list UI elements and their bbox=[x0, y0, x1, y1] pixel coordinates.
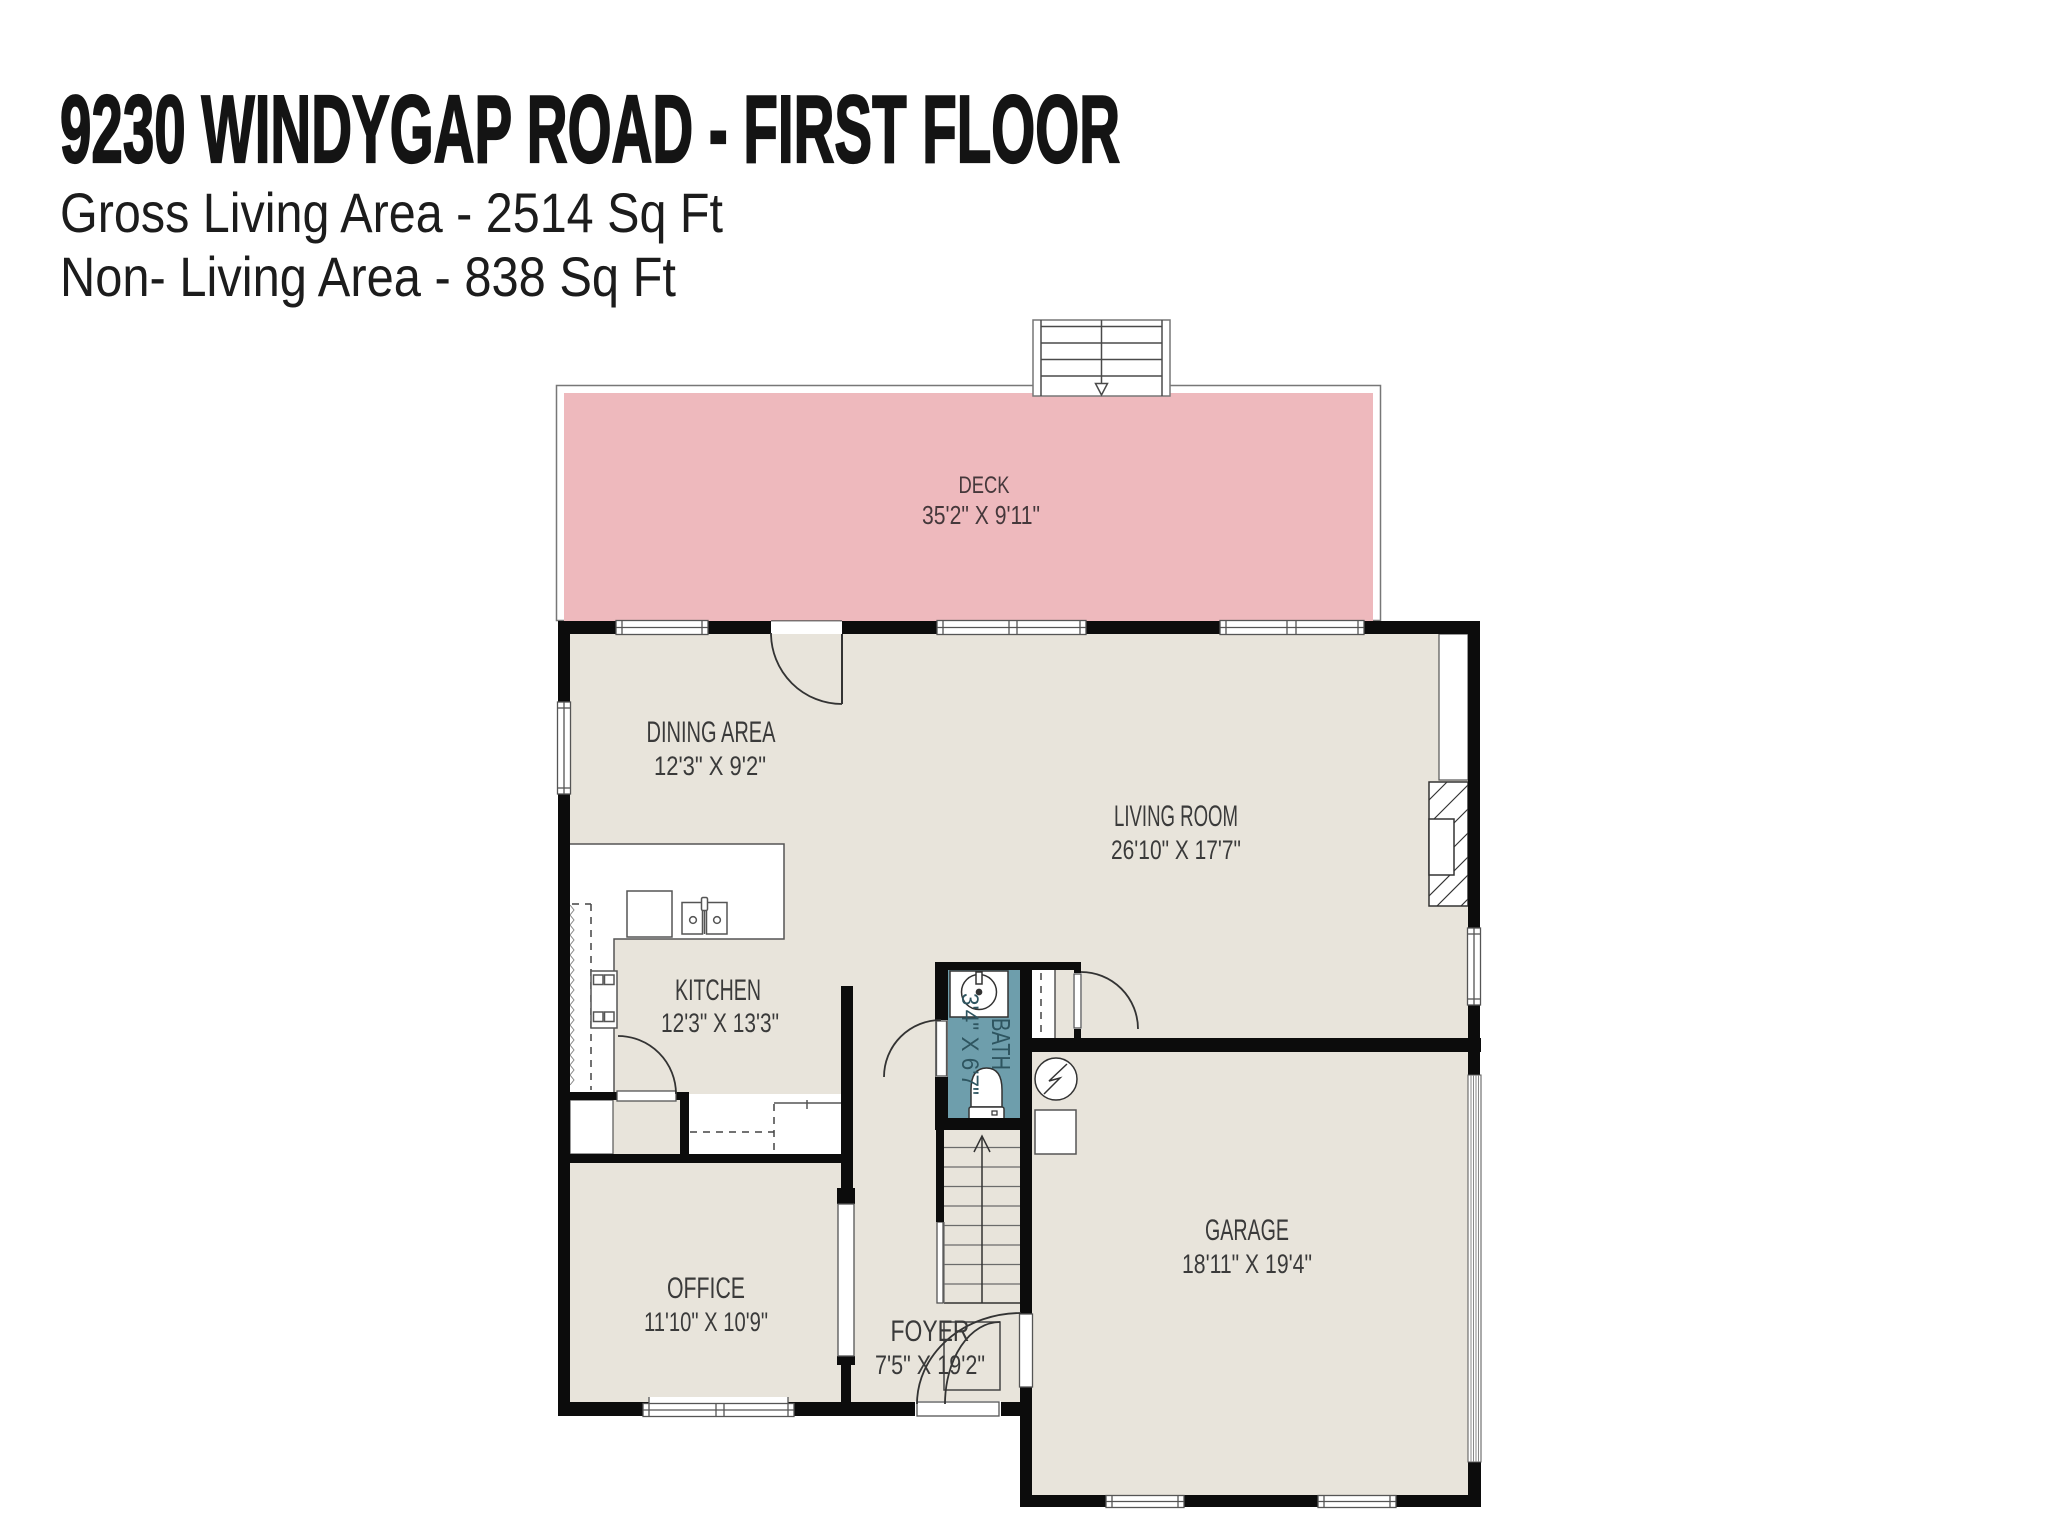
svg-text:KITCHEN: KITCHEN bbox=[675, 974, 761, 1007]
svg-text:9230 WINDYGAP ROAD - FIRST FLO: 9230 WINDYGAP ROAD - FIRST FLOOR bbox=[60, 76, 1120, 183]
svg-text:LIVING ROOM: LIVING ROOM bbox=[1114, 800, 1238, 833]
svg-text:18'11" X 19'4": 18'11" X 19'4" bbox=[1182, 1249, 1312, 1279]
svg-text:35'2" X 9'11": 35'2" X 9'11" bbox=[922, 500, 1040, 530]
svg-text:7'5" X 19'2": 7'5" X 19'2" bbox=[875, 1350, 985, 1380]
svg-text:FOYER: FOYER bbox=[891, 1315, 970, 1348]
svg-text:26'10" X 17'7": 26'10" X 17'7" bbox=[1111, 835, 1241, 865]
svg-text:OFFICE: OFFICE bbox=[667, 1272, 745, 1305]
svg-text:BATH: BATH bbox=[986, 1018, 1016, 1070]
svg-text:DINING AREA: DINING AREA bbox=[647, 716, 776, 749]
svg-text:12'3" X 13'3": 12'3" X 13'3" bbox=[661, 1008, 779, 1038]
svg-text:3'4" X 6'7": 3'4" X 6'7" bbox=[956, 993, 983, 1095]
svg-text:DECK: DECK bbox=[959, 472, 1010, 499]
svg-text:Gross Living Area - 2514 Sq Ft: Gross Living Area - 2514 Sq Ft bbox=[60, 181, 723, 244]
svg-text:GARAGE: GARAGE bbox=[1205, 1214, 1289, 1247]
svg-text:12'3" X 9'2": 12'3" X 9'2" bbox=[654, 751, 766, 781]
svg-text:Non- Living Area - 838 Sq Ft: Non- Living Area - 838 Sq Ft bbox=[60, 245, 676, 308]
svg-text:11'10" X 10'9": 11'10" X 10'9" bbox=[644, 1307, 768, 1337]
